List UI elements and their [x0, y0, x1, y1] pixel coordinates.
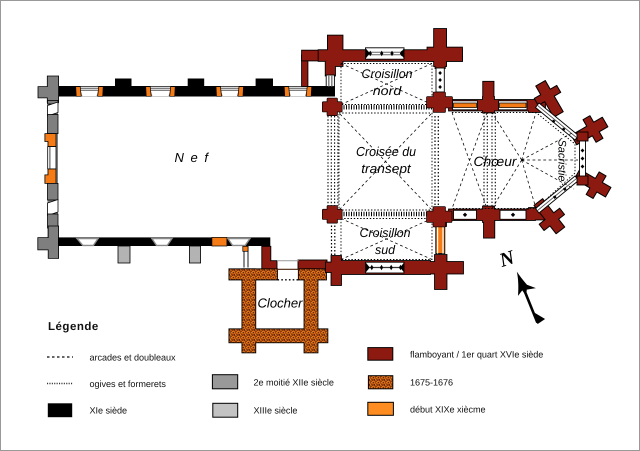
svg-text:Croisillon: Croisillon	[360, 226, 411, 240]
svg-text:flamboyant / 1er quart XVIe si: flamboyant / 1er quart XVIe siède	[410, 350, 543, 360]
svg-text:sud: sud	[375, 243, 396, 257]
svg-text:Sacristie: Sacristie	[556, 140, 568, 182]
svg-text:1675-1676: 1675-1676	[410, 378, 453, 388]
svg-text:N e f: N e f	[175, 150, 210, 165]
svg-text:arcades et doubleaux: arcades et doubleaux	[90, 353, 176, 363]
svg-text:Croisée du: Croisée du	[356, 144, 416, 159]
svg-text:Chœur: Chœur	[474, 154, 518, 169]
svg-text:transept: transept	[361, 161, 412, 176]
svg-text:XIIIe siècle: XIIIe siècle	[254, 406, 298, 416]
svg-text:XIe siède: XIe siède	[90, 406, 127, 416]
svg-text:ogives et formerets: ogives et formerets	[90, 379, 167, 389]
svg-text:2e moitié XIIe siècle: 2e moitié XIIe siècle	[254, 378, 334, 388]
svg-text:Légende: Légende	[48, 321, 99, 333]
svg-text:début XIXe xiècme: début XIXe xiècme	[410, 405, 485, 415]
svg-text:nord: nord	[373, 84, 403, 98]
svg-text:Clocher: Clocher	[258, 296, 304, 311]
svg-text:Croisillon: Croisillon	[362, 67, 413, 81]
